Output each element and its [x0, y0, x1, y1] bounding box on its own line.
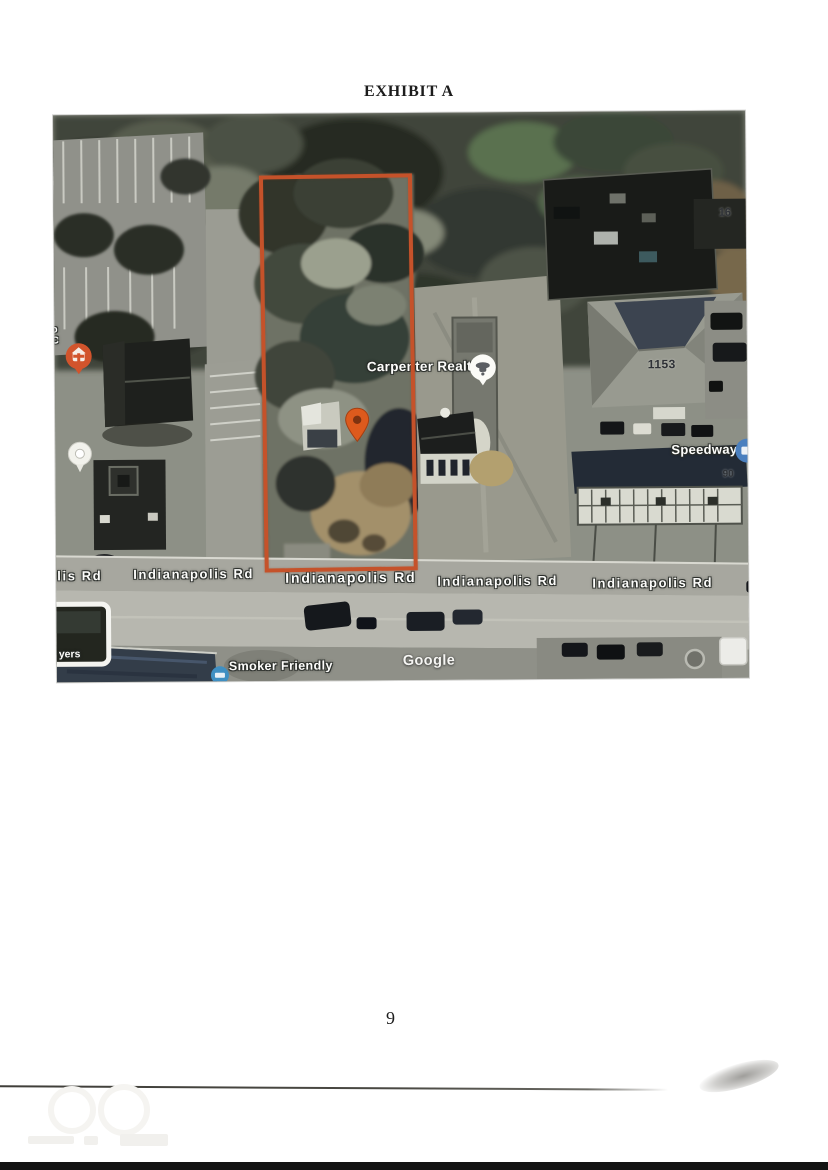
smoker-friendly-label: Smoker Friendly	[229, 658, 333, 673]
medical-poi-icon	[65, 342, 93, 375]
scan-edge-bar	[0, 1162, 828, 1170]
address-label-16: 16	[719, 207, 731, 219]
realtor-poi-icon	[469, 353, 497, 386]
address-label-90: 90	[723, 469, 734, 480]
speedway-poi-icon	[734, 437, 749, 463]
logo-circle-icon	[48, 1086, 96, 1134]
speedway-label: Speedway	[671, 442, 737, 457]
smoker-friendly-poi-icon	[210, 665, 230, 682]
bottom-left-label-fragment: yers	[59, 648, 81, 660]
road-label-1: Indianapolis Rd	[133, 566, 254, 582]
property-boundary-outline	[259, 173, 418, 572]
logo-text-smudge	[120, 1134, 168, 1146]
location-pin-icon	[344, 407, 370, 443]
google-watermark: Google	[403, 653, 455, 669]
white-poi-pin-icon	[67, 441, 92, 473]
left-edge-label-fragment: o C	[53, 324, 59, 346]
logo-text-smudge	[28, 1136, 74, 1144]
satellite-map-image: o C Carpenter Realtors Speedway 16 1153 …	[53, 111, 749, 683]
logo-text-smudge	[84, 1136, 98, 1145]
address-label-1153: 1153	[648, 357, 676, 371]
logo-circle-icon	[98, 1084, 150, 1136]
faint-logo-watermark	[36, 1080, 216, 1150]
map-control-box	[720, 638, 747, 665]
exhibit-title: EXHIBIT A	[0, 83, 818, 101]
scanned-document-page: EXHIBIT A	[0, 0, 828, 1170]
road-label-3: Indianapolis Rd	[437, 573, 558, 589]
parking-bottom-right	[537, 637, 722, 679]
page-number: 9	[386, 1008, 395, 1029]
road-label-4: Indianapolis Rd	[592, 575, 713, 591]
scan-artifact-smudge	[696, 1053, 781, 1099]
road-label-partial: lis Rd	[57, 568, 102, 583]
gable-roof-buildings-left	[102, 338, 194, 447]
